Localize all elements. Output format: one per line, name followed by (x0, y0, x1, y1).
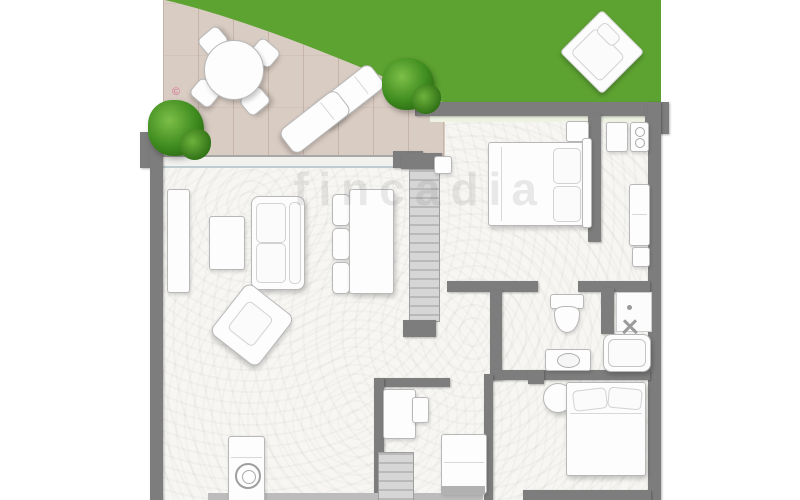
washbasin (557, 353, 580, 368)
wall-bath-left (490, 290, 502, 380)
hall-shelf-notch (412, 397, 429, 423)
coffee-table (209, 216, 245, 270)
wall-bed1-bottom-right (578, 281, 650, 292)
potted-plant (148, 100, 204, 156)
wall-left (150, 133, 163, 500)
bed2-pillow (572, 387, 608, 412)
bathtub (603, 334, 651, 372)
wall-bed2-bottom (523, 490, 651, 500)
floorplan-image: © fincadia (0, 0, 800, 500)
bathtub-basin (608, 339, 646, 367)
washer-door (235, 463, 261, 489)
unit-divider-line (231, 457, 262, 458)
sofa-cushion (256, 243, 286, 283)
wall-bath-bottom-block (528, 370, 544, 384)
wall-hall-horizontal (374, 378, 450, 387)
closet-base-strip (441, 486, 485, 495)
bed2-double-bed (566, 382, 646, 476)
armchair-cushion (227, 300, 274, 348)
closet-shelf-line (444, 462, 484, 463)
round-table (204, 40, 264, 100)
watermark-text: fincadia (200, 162, 640, 212)
dining-chair (332, 262, 350, 294)
hatched-cabinet (378, 452, 414, 500)
lounger-fold-line (354, 76, 368, 94)
dining-chair (332, 228, 350, 260)
hall-closet (441, 434, 487, 494)
lounger-fold-line (320, 102, 334, 120)
bed2-blanket-line (570, 413, 642, 414)
divider-cap-bottom (403, 320, 436, 337)
wall-shower-stub (601, 288, 614, 334)
vanity-counter (545, 349, 591, 371)
cabinet-shelf-line (632, 214, 647, 215)
washer-drum (242, 470, 256, 484)
potted-plant (382, 58, 434, 110)
kitchen-tall-unit (228, 436, 265, 500)
sideboard (167, 189, 190, 293)
utility-sink-unit (606, 122, 628, 152)
hob-ring (635, 138, 645, 148)
utility-hob-unit (630, 122, 649, 152)
wall-top (415, 102, 661, 116)
bed2-pillow (607, 387, 643, 411)
utility-cabinet (632, 247, 650, 267)
shower-drain (627, 305, 632, 310)
hob-ring (635, 127, 645, 137)
